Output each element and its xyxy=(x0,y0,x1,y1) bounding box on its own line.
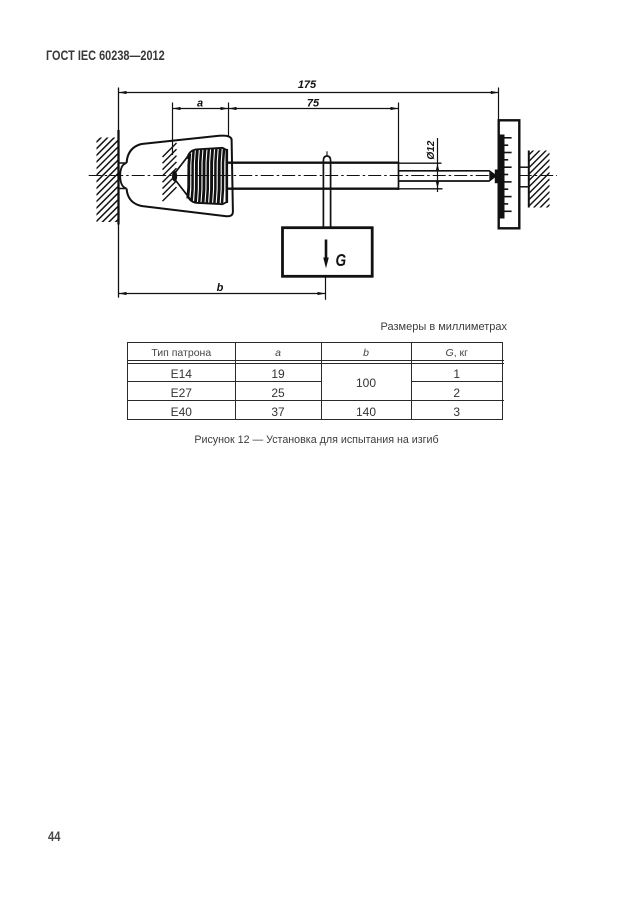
svg-text:Ø12: Ø12 xyxy=(426,140,437,159)
svg-text:G: G xyxy=(336,252,347,271)
svg-text:a: a xyxy=(197,98,203,110)
svg-text:75: 75 xyxy=(307,98,320,110)
svg-text:175: 175 xyxy=(298,79,317,91)
svg-text:b: b xyxy=(217,282,224,294)
